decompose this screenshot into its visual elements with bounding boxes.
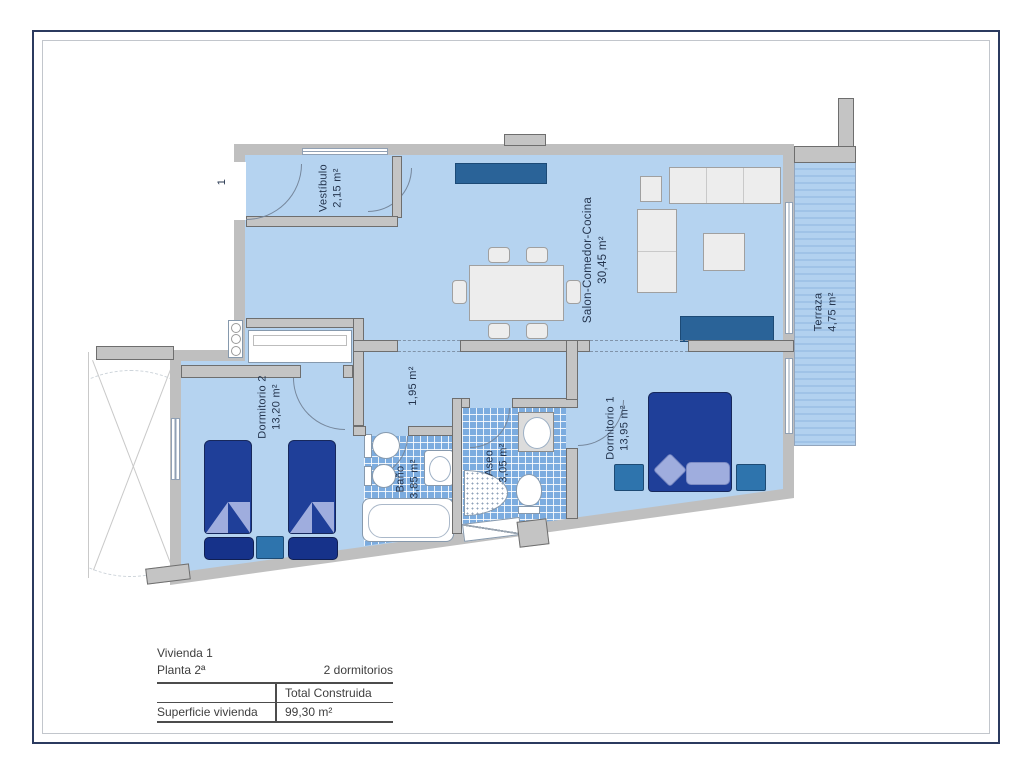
bathtub-inner <box>368 504 450 538</box>
exterior-wall-stub <box>96 346 174 360</box>
entrance-door-gap <box>233 162 246 220</box>
bedroom1-left-wall-b <box>566 448 578 519</box>
duct-circle-icon <box>231 334 241 344</box>
room-name: Aseo <box>483 443 497 482</box>
living-south-wall-c <box>688 340 794 352</box>
washbasin-bowl <box>429 456 451 482</box>
duct-circle-icon <box>231 346 241 356</box>
room-area: 13,95 m² <box>618 396 632 460</box>
room-name: Terraza <box>812 292 826 331</box>
room-area: 3,85 m² <box>408 459 422 498</box>
room-name: Salon-Comedor-Cocina <box>581 197 596 323</box>
tv-sideboard <box>680 316 774 342</box>
built-in-wardrobe <box>248 330 352 363</box>
unit-name: Vivienda 1 <box>157 646 393 660</box>
room-label-salon: Salon-Comedor-Cocina 30,45 m² <box>581 197 611 323</box>
bedroom1-window <box>785 358 793 434</box>
courtyard-area <box>88 352 173 578</box>
dining-table <box>469 265 564 321</box>
bathroom-divider-wall <box>452 398 462 534</box>
bidet <box>372 464 396 488</box>
unit-info-block: Vivienda 1 Planta 2ª 2 dormitorios Total… <box>157 646 393 723</box>
bed-sheet-fold <box>206 502 228 533</box>
dining-chair <box>526 323 548 339</box>
room-name: Vestíbulo <box>317 164 331 212</box>
sofa-chaise <box>637 209 677 293</box>
area-table: Total Construida Superficie vivienda 99,… <box>157 682 393 723</box>
hall-wall-upper <box>246 216 398 227</box>
bedroom1-left-wall-a <box>566 340 578 400</box>
duct-circle-icon <box>231 323 241 333</box>
wardrobe-corridor-wall <box>246 318 356 328</box>
room-name: Dormitorio 1 <box>604 396 618 460</box>
courtyard-dashed-arc <box>88 370 173 577</box>
hall-wall-vertical <box>353 318 364 426</box>
bathroom-top-wall-b <box>408 426 453 436</box>
bed-sheet-fold <box>290 502 312 533</box>
bathtub <box>362 498 454 542</box>
room-label-terraza: Terraza 4,75 m² <box>812 292 841 331</box>
bed-pillow <box>686 462 730 485</box>
living-south-wall-a <box>353 340 398 352</box>
unit-floor: Planta 2ª <box>157 663 205 677</box>
floor-plan-page: 1 Vestíbulo 2,15 m² Salon-Comedor-Cocina… <box>0 0 1024 768</box>
room-area: 1,95 m² <box>406 366 420 405</box>
room-label-vestibulo: Vestíbulo 2,15 m² <box>317 164 346 212</box>
bed-pillow <box>204 537 254 560</box>
dining-chair <box>488 247 510 263</box>
table-empty-cell <box>157 684 275 702</box>
wall-opening-dashed <box>398 340 460 352</box>
room-area: 4,75 m² <box>826 292 840 331</box>
coffee-table <box>703 233 745 271</box>
table-header-row: Total Construida <box>157 684 393 703</box>
table-row-label: Superficie vivienda <box>157 703 275 721</box>
terrace-wall-horizontal <box>794 146 856 163</box>
side-table <box>640 176 662 202</box>
bed-sheet-fold <box>228 502 250 533</box>
unit-bedrooms: 2 dormitorios <box>324 663 393 677</box>
bedroom2-window <box>171 418 180 480</box>
toilet <box>372 432 400 459</box>
entrance-number-label: 1 <box>215 179 229 185</box>
washbasin-bowl <box>523 417 551 449</box>
room-area: 30,45 m² <box>596 197 611 323</box>
room-name: Dormitorio 2 <box>256 375 270 439</box>
room-area: 3,05 m² <box>497 443 511 482</box>
bedroom2-top-wall-end <box>343 365 353 378</box>
nightstand <box>256 536 284 559</box>
room-label-bano: Baño 3,85 m² <box>394 459 423 498</box>
table-total-value: 99,30 m² <box>275 703 393 721</box>
nightstand <box>736 464 766 491</box>
toilet <box>516 474 542 506</box>
bathroom-top-wall-a <box>353 426 366 436</box>
vestibule-partition-wall <box>392 156 402 218</box>
shaft-duct <box>228 320 243 358</box>
toilet-tank <box>364 434 372 458</box>
room-label-dormitorio2: Dormitorio 2 13,20 m² <box>256 375 285 439</box>
room-label-aseo: Aseo 3,05 m² <box>483 443 512 482</box>
bed-sheet-fold <box>312 502 334 533</box>
room-area: 2,15 m² <box>331 164 345 212</box>
vestibule-window <box>302 148 388 155</box>
top-wall-pillar <box>504 134 546 146</box>
table-data-row: Superficie vivienda 99,30 m² <box>157 703 393 721</box>
room-label-pasillo: 1,95 m² <box>406 366 420 405</box>
nightstand <box>614 464 644 491</box>
room-area: 13,20 m² <box>270 375 284 439</box>
kitchen-counter <box>455 163 547 184</box>
dining-chair <box>526 247 548 263</box>
dining-chair <box>452 280 467 304</box>
table-header-total: Total Construida <box>275 684 393 702</box>
washbasin <box>424 450 454 486</box>
room-label-dormitorio1: Dormitorio 1 13,95 m² <box>604 396 633 460</box>
terrace-glass-door <box>785 202 793 334</box>
bidet-base <box>364 466 372 486</box>
sofa <box>669 167 781 204</box>
wall-opening-dashed <box>590 340 688 352</box>
bed-pillow <box>288 537 338 560</box>
room-name: Baño <box>394 459 408 498</box>
exterior-wall-stub <box>517 518 550 547</box>
entrance-number: 1 <box>216 179 228 185</box>
dining-chair <box>566 280 581 304</box>
toilet-tank <box>518 506 540 514</box>
washbasin-counter <box>518 412 554 452</box>
dining-chair <box>488 323 510 339</box>
wardrobe-sliding-door <box>253 335 347 346</box>
